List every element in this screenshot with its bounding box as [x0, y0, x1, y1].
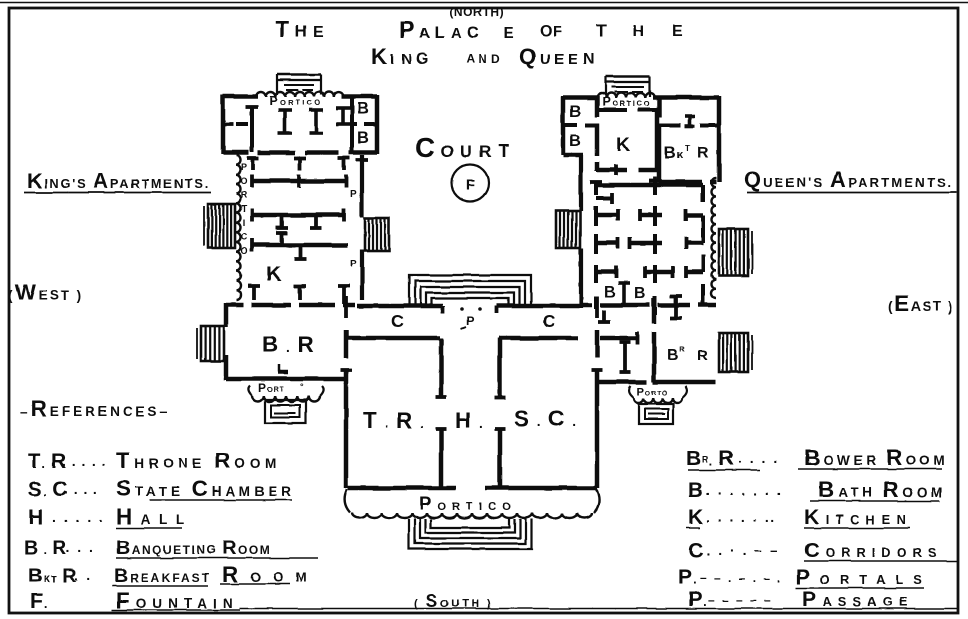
svg-text:R: R — [479, 142, 491, 161]
svg-text:O: O — [540, 23, 552, 40]
svg-text:. .: . . — [74, 567, 92, 583]
svg-text:O: O — [240, 246, 247, 256]
svg-text:L: L — [434, 23, 444, 42]
svg-text:C: C — [467, 23, 479, 42]
svg-text:K: K — [616, 135, 630, 156]
svg-text:I: I — [243, 218, 246, 228]
svg-text:T: T — [275, 16, 289, 42]
svg-text:A: A — [451, 25, 462, 42]
svg-text:E: E — [568, 51, 578, 68]
svg-text:K: K — [266, 263, 282, 286]
svg-text:T: T — [685, 144, 690, 153]
svg-text:P: P — [399, 17, 415, 44]
svg-text:H: H — [28, 506, 44, 529]
svg-text:°: ° — [300, 382, 304, 392]
svg-text:. . . . . ..: . . . . . .. — [706, 509, 777, 525]
svg-text:. . . .: . . . . — [738, 450, 779, 466]
svg-text:C: C — [241, 232, 248, 242]
svg-text:B: B — [357, 100, 369, 118]
svg-text:E: E — [672, 23, 683, 40]
svg-text:O: O — [240, 176, 247, 186]
svg-text:O: O — [441, 142, 454, 161]
svg-text:R: R — [697, 145, 709, 162]
svg-text:A: A — [466, 52, 475, 66]
svg-text:– – – – –: – – – – – — [708, 593, 773, 607]
svg-text:T: T — [596, 21, 607, 40]
svg-text:– – . – . – .: – – . – . – . — [700, 571, 783, 585]
svg-text:N: N — [401, 51, 412, 68]
svg-text:K: K — [688, 506, 704, 529]
svg-text:N: N — [478, 52, 487, 66]
svg-text:. . . .: . . . . — [64, 481, 98, 497]
svg-text:. . · . – –: . . · . – – — [706, 542, 779, 558]
svg-text:C: C — [415, 132, 435, 163]
svg-text:A: A — [419, 25, 430, 42]
svg-text:H: H — [633, 23, 645, 40]
svg-text:I: I — [390, 51, 394, 68]
svg-text:T: T — [498, 141, 509, 161]
svg-text:T: T — [241, 204, 247, 214]
svg-text:. . . . .: . . . . . — [62, 453, 106, 469]
svg-text:ᴿ: ᴿ — [680, 346, 685, 357]
svg-text:N: N — [583, 51, 595, 68]
svg-text:Q: Q — [519, 44, 536, 69]
svg-text:F: F — [465, 177, 474, 194]
svg-text:C: C — [543, 311, 555, 331]
svg-text:R: R — [241, 190, 248, 200]
svg-text:B: B — [664, 143, 676, 162]
svg-text:P: P — [350, 259, 357, 270]
svg-text:F: F — [553, 23, 562, 40]
svg-text:P: P — [241, 162, 247, 172]
svg-text:C: C — [688, 539, 704, 562]
svg-text:B: B — [688, 479, 704, 502]
svg-text:E: E — [313, 24, 324, 41]
svg-text:. . . . . . .: . . . . . . . — [706, 482, 783, 498]
svg-text:D: D — [491, 52, 500, 66]
svg-text:P: P — [350, 189, 357, 200]
svg-text:E: E — [503, 25, 514, 42]
svg-text:U: U — [460, 142, 472, 161]
svg-text:E: E — [554, 51, 564, 68]
svg-text:B: B — [634, 285, 645, 302]
svg-text:B: B — [569, 103, 581, 121]
svg-text:C: C — [391, 311, 403, 331]
svg-text:(NORTH): (NORTH) — [450, 5, 504, 19]
svg-text:. . . . .: . . . . . — [52, 509, 105, 525]
svg-text:K: K — [371, 44, 387, 69]
svg-text:B: B — [667, 347, 679, 364]
svg-text:H: H — [295, 22, 307, 41]
svg-text:R: R — [697, 347, 708, 364]
svg-text:ᴋ: ᴋ — [677, 149, 684, 161]
svg-text:G: G — [416, 51, 428, 68]
svg-text:P: P — [466, 314, 474, 328]
svg-text:B: B — [604, 284, 615, 301]
svg-text:. . .: . . . — [66, 539, 95, 555]
svg-text:B: B — [357, 129, 369, 147]
svg-text:U: U — [540, 51, 551, 68]
svg-text:B: B — [569, 132, 581, 150]
